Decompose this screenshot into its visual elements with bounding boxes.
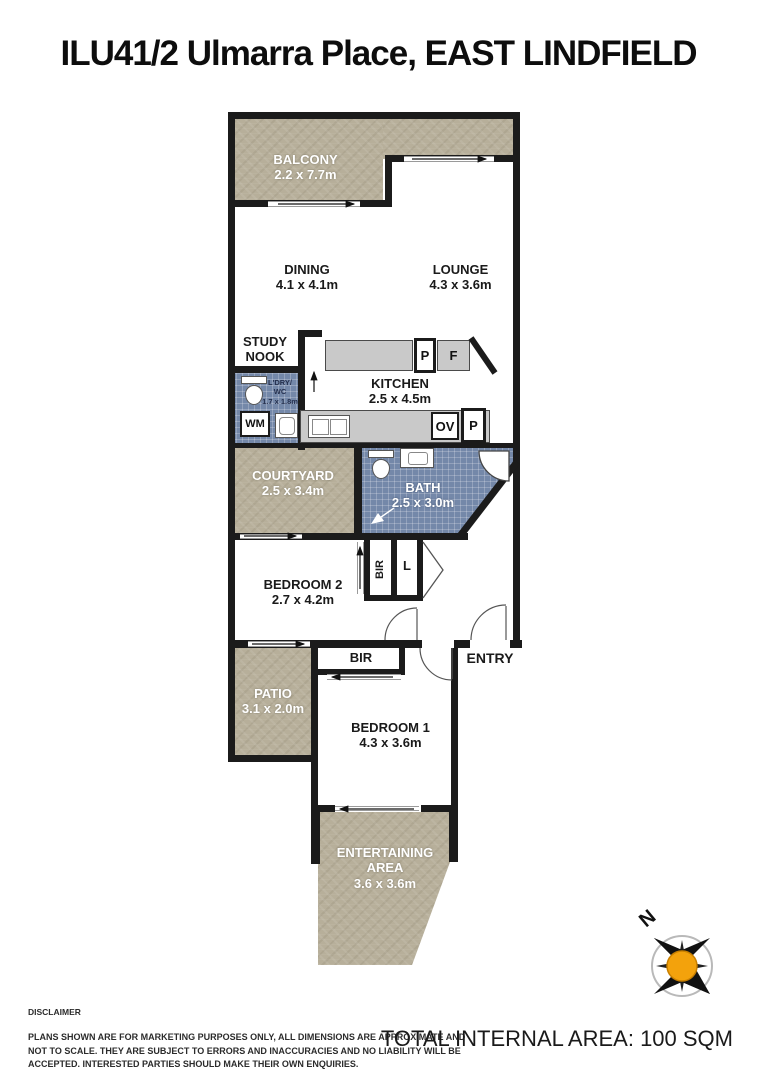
pantry-bottom-label: P (469, 418, 478, 433)
kitchen-label: KITCHEN 2.5 x 4.5m (350, 376, 450, 407)
wall-kitchen-stub (298, 330, 322, 337)
wall-patio-bottom (228, 755, 316, 762)
wall-bed1-left (311, 648, 318, 812)
bedroom2-window (248, 641, 310, 647)
total-internal-area: TOTAL INTERNAL AREA: 100 SQM (381, 1026, 733, 1052)
wall-right (513, 112, 520, 648)
wall-entertaining-left (311, 812, 320, 864)
kitchen-sink (308, 415, 350, 438)
balcony-label: BALCONY 2.2 x 7.7m (243, 152, 368, 183)
wall-closet-bottom (364, 595, 423, 601)
kitchen-island-bench (325, 340, 413, 371)
page-title: ILU41/2 Ulmarra Place, EAST LINDFIELD (0, 34, 757, 74)
laundry-tub (275, 413, 298, 438)
pantry-bottom-box: P (461, 408, 486, 443)
wall-top (228, 112, 520, 119)
laundry-wc-label: L'DRY/ WC 1.7 x 1.8m (262, 378, 298, 406)
lounge-label: LOUNGE 4.3 x 3.6m (408, 262, 513, 293)
wall-mid (228, 443, 520, 448)
study-nook-label: STUDY NOOK (234, 334, 296, 365)
wall-fridge-diagonal (471, 338, 495, 373)
wall-bed1-bottom-b (421, 805, 458, 812)
bedroom1-label: BEDROOM 1 4.3 x 3.6m (328, 720, 453, 751)
bir2-label: BIR (366, 544, 394, 594)
courtyard-slider (240, 534, 302, 539)
toilet-cistern-bath (368, 450, 394, 458)
wall-entertaining-right (449, 812, 458, 862)
oven-label: OV (436, 419, 455, 434)
bath-vanity (400, 448, 434, 468)
pantry-top-box: P (414, 338, 436, 373)
wall-balcony-step (385, 155, 392, 207)
bir1-slider (327, 674, 401, 680)
wall-left (228, 112, 235, 762)
fridge-label: F (450, 348, 458, 363)
bedroom1-slider (335, 806, 419, 811)
washing-machine-box: WM (240, 411, 270, 437)
entertaining-label: ENTERTAINING AREA 3.6 x 3.6m (322, 845, 448, 891)
bedroom2-door-arc (385, 608, 417, 640)
entry-label: ENTRY (450, 650, 530, 667)
wall-studynook-laundry (228, 366, 305, 373)
wall-bed1-bottom-a (311, 805, 335, 812)
bedroom1-door-arc (420, 648, 452, 680)
disclaimer-heading: DISCLAIMER (28, 1007, 81, 1017)
fridge-box: F (437, 340, 470, 371)
washing-machine-label: WM (245, 418, 265, 430)
compass-north-label: N (635, 906, 660, 932)
wall-bed2-bottom-b (454, 640, 470, 648)
pantry-top-label: P (421, 348, 430, 363)
dining-label: DINING 4.1 x 4.1m (257, 262, 357, 293)
linen-label: L (395, 558, 419, 573)
wall-bed2-bottom-c (510, 640, 522, 648)
patio-label: PATIO 3.1 x 2.0m (228, 686, 318, 717)
oven-box: OV (431, 412, 459, 440)
courtyard-label: COURTYARD 2.5 x 3.4m (233, 468, 353, 499)
bedroom2-label: BEDROOM 2 2.7 x 4.2m (243, 577, 363, 608)
balcony-slider-right (404, 156, 494, 162)
compass-graphic: N (620, 898, 740, 1020)
entry-door-arc (471, 605, 506, 640)
floorplan: P F OV P WM (228, 112, 522, 965)
bath-label: BATH 2.5 x 3.0m (373, 480, 473, 511)
floorplan-page: ILU41/2 Ulmarra Place, EAST LINDFIELD (0, 0, 757, 1080)
wall-courtyard-bath (354, 445, 362, 540)
compass-rose: N (620, 898, 740, 1020)
linen-bifold (423, 542, 443, 598)
balcony-slider-left (268, 201, 360, 207)
bir1-label: BIR (321, 650, 401, 665)
compass-center (667, 951, 697, 981)
